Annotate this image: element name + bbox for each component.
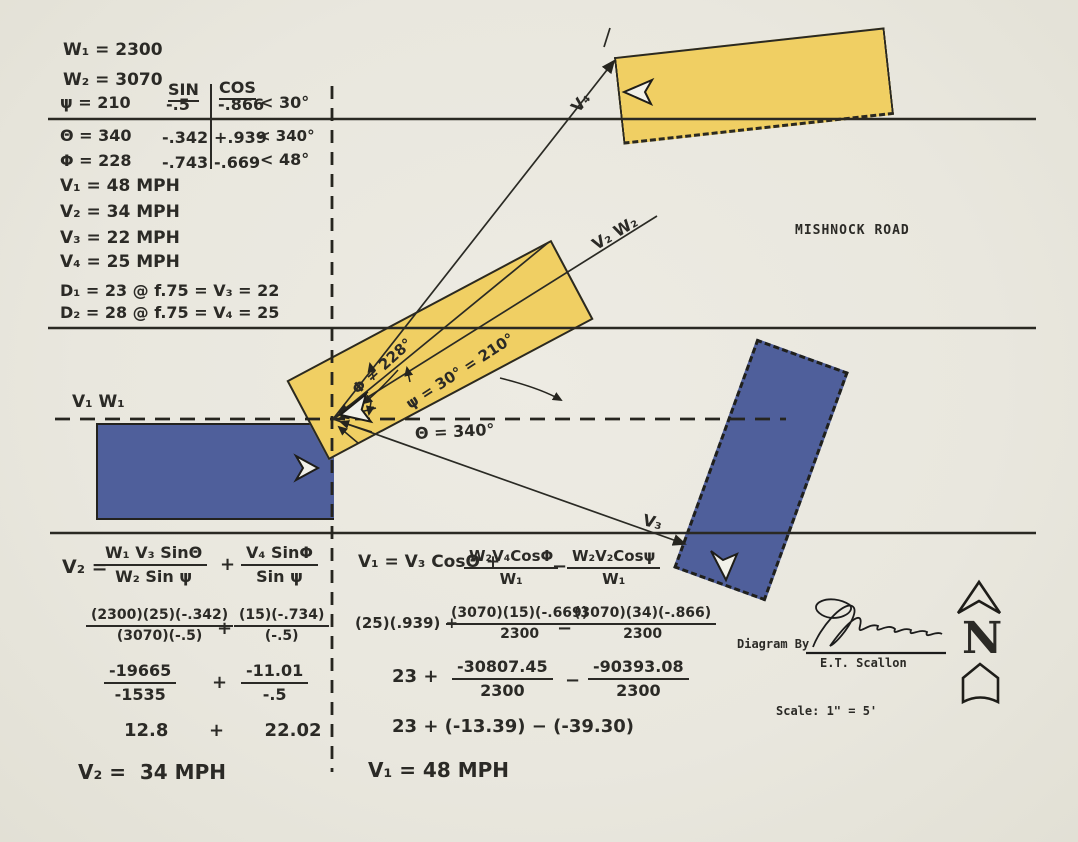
calc-right-s3-frac2: -90393.08 2300	[588, 658, 689, 699]
calc-right-s2-pre: (25)(.939) +	[355, 616, 458, 632]
calc-left-s1-frac1: W₁ V₃ SinΘ W₂ Sin ψ	[100, 544, 207, 585]
fraction-denominator: 2300	[611, 680, 666, 700]
fraction-denominator: (-.5)	[260, 627, 304, 644]
row-psi-sin: -.5	[166, 97, 190, 114]
v3-trajectory-line	[333, 419, 685, 544]
fraction-denominator: (3070)(-.5)	[112, 627, 207, 644]
fraction-numerator: W₂V₂Cosψ	[567, 548, 660, 569]
signature-scribble	[813, 599, 942, 647]
scanned-diagram-sheet: W₁ = 2300 W₂ = 3070 SIN COS ψ = 210 -.5 …	[0, 0, 1078, 842]
calc-right-s3-op: −	[565, 672, 580, 691]
fraction-numerator: (15)(-.734)	[234, 608, 329, 627]
note-w2: W₂ = 3070	[63, 72, 163, 90]
arrow-in-car-v1-rest	[711, 551, 737, 580]
fraction-numerator: (3070)(34)(-.866)	[569, 606, 716, 625]
fraction-denominator: 2300	[618, 625, 667, 642]
note-d1: D₁ = 23 @ f.75 = V₃ = 22	[60, 283, 279, 300]
fraction-denominator: 2300	[475, 680, 530, 700]
calc-left-step4: 12.8 + 22.02	[124, 722, 322, 741]
calc-right-result: V₁ = 48 MPH	[368, 760, 509, 781]
row-psi-cos: -.866	[218, 97, 264, 114]
fraction-denominator: Sin ψ	[251, 566, 308, 586]
fraction-numerator: -19665	[104, 662, 176, 684]
row-phi-sin: -.743	[162, 155, 208, 172]
calc-right-s3-frac1: -30807.45 2300	[452, 658, 553, 699]
calc-left-s3-op: +	[212, 674, 227, 693]
calc-left-s1-frac2: V₄ SinΦ Sin ψ	[241, 544, 318, 585]
arrow-in-car-v2-rest	[624, 80, 652, 104]
row-phi-cos: -.669	[214, 155, 260, 172]
note-v4: V₄ = 25 MPH	[60, 254, 180, 272]
fraction-denominator: -.5	[258, 684, 292, 704]
fraction-numerator: -90393.08	[588, 658, 689, 680]
calc-left-s2-frac1: (2300)(25)(-.342) (3070)(-.5)	[86, 608, 233, 645]
fraction-numerator: W₁ V₃ SinΘ	[100, 544, 207, 566]
calc-left-s3-frac2: -11.01 -.5	[241, 662, 308, 703]
note-d2: D₂ = 28 @ f.75 = V₄ = 25	[60, 305, 279, 322]
v1w1-label: V₁ W₁	[72, 394, 125, 412]
calc-right-s1-frac2: W₂V₂Cosψ W₁	[567, 548, 660, 587]
trajectory-lines	[333, 28, 685, 544]
calc-left-s1-op: +	[220, 556, 235, 575]
fraction-denominator: W₁	[495, 569, 528, 588]
note-w1: W₁ = 2300	[63, 42, 163, 60]
note-v2: V₂ = 34 MPH	[60, 204, 180, 222]
calc-right-s1-frac1: W₂V₄CosΦ W₁	[464, 548, 558, 587]
row-phi-angle: < 48°	[260, 152, 309, 169]
row-psi-angle: < 30°	[260, 95, 309, 112]
fraction-denominator: W₁	[597, 569, 630, 588]
road-edge-lines	[48, 119, 1036, 533]
row-theta-label: Θ = 340	[60, 128, 132, 145]
car-direction-arrows	[296, 80, 737, 580]
scale-label: Scale: 1" = 5'	[776, 705, 877, 718]
row-theta-sin: -.342	[162, 130, 208, 147]
fraction-numerator: W₂V₄CosΦ	[464, 548, 558, 569]
calc-right-s1-op: −	[552, 558, 567, 577]
north-tail-shape	[963, 664, 998, 702]
fraction-numerator: V₄ SinΦ	[241, 544, 318, 566]
v4-tickmark	[604, 28, 610, 47]
calc-left-s2-op: +	[217, 620, 232, 639]
signed-name: E.T. Scallon	[820, 657, 907, 670]
north-arrowhead	[958, 582, 1000, 613]
row-phi-label: Φ = 228	[60, 153, 132, 170]
fraction-numerator: -30807.45	[452, 658, 553, 680]
road-name-label: MISHNOCK ROAD	[795, 224, 910, 238]
north-letter: N	[962, 616, 1002, 662]
note-v1: V₁ = 48 MPH	[60, 178, 180, 196]
calc-right-s3-pre: 23 +	[392, 668, 438, 687]
fraction-numerator: -11.01	[241, 662, 308, 684]
calc-right-step4: 23 + (-13.39) − (-39.30)	[392, 718, 634, 737]
calc-right-s2-frac2: (3070)(34)(-.866) 2300	[569, 606, 716, 643]
row-theta-angle: < 340°	[258, 129, 315, 145]
arrow-in-car-v1w1	[296, 456, 318, 480]
fraction-denominator: -1535	[110, 684, 171, 704]
fraction-numerator: (2300)(25)(-.342)	[86, 608, 233, 627]
fraction-denominator: 2300	[495, 625, 544, 642]
row-psi-label: ψ = 210	[60, 95, 131, 112]
diagram-by-label: Diagram By	[737, 638, 809, 651]
calc-left-s2-frac2: (15)(-.734) (-.5)	[234, 608, 329, 645]
note-v3: V₃ = 22 MPH	[60, 230, 180, 248]
fraction-denominator: W₂ Sin ψ	[110, 566, 197, 586]
calc-left-s3-frac1: -19665 -1535	[104, 662, 176, 703]
calc-left-result: V₂ = 34 MPH	[78, 762, 226, 783]
